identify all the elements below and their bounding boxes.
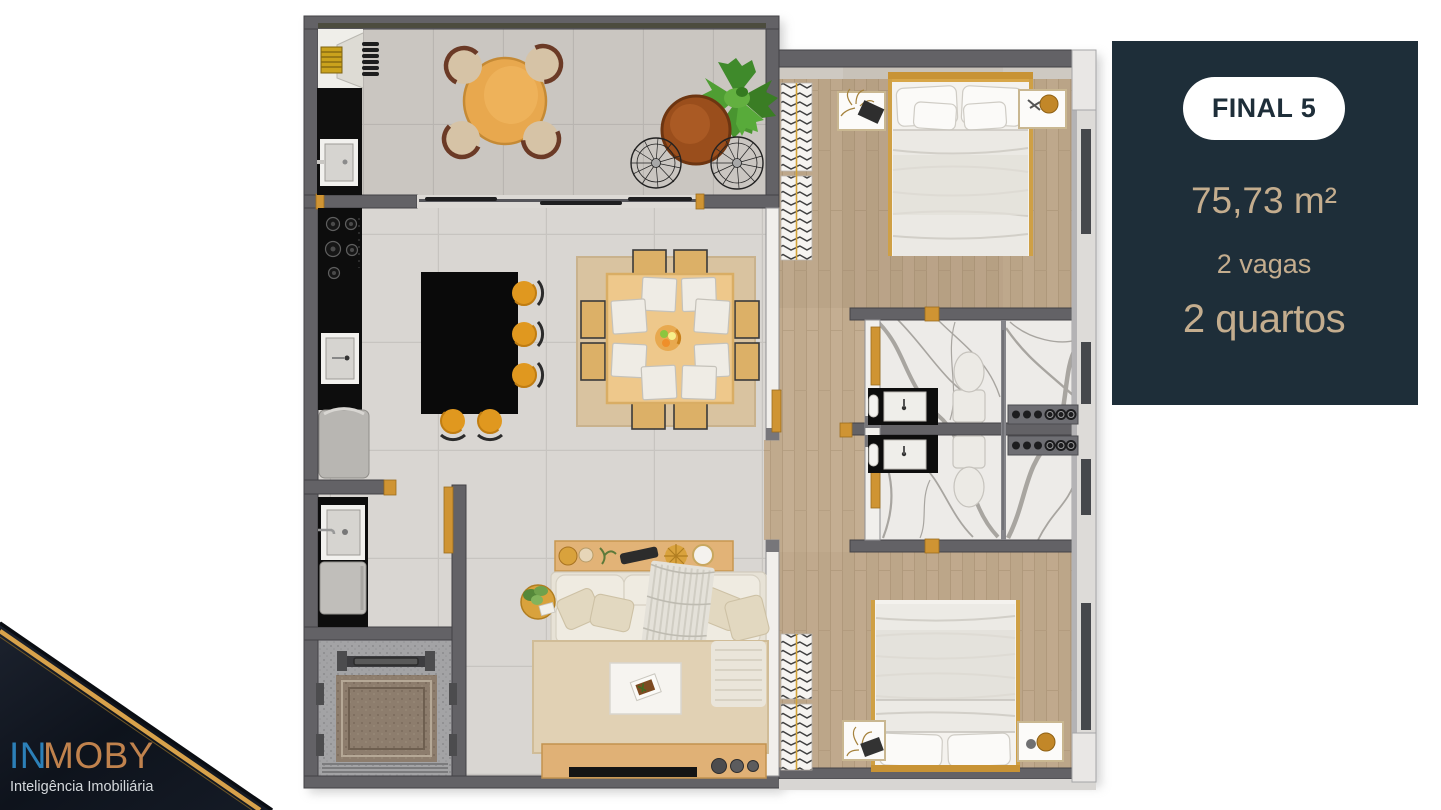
svg-text:Inteligência Imobiliária: Inteligência Imobiliária bbox=[10, 779, 154, 795]
svg-text:75,73 m²: 75,73 m² bbox=[1191, 180, 1337, 221]
svg-text:FINAL 5: FINAL 5 bbox=[1212, 93, 1316, 123]
svg-text:2 quartos: 2 quartos bbox=[1183, 297, 1345, 341]
svg-text:INMOBY: INMOBY bbox=[9, 735, 154, 776]
svg-text:2 vagas: 2 vagas bbox=[1217, 249, 1312, 279]
